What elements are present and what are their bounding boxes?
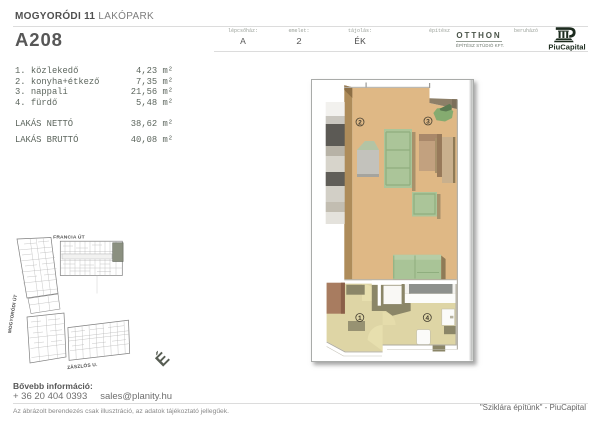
svg-text:3: 3 [426, 118, 430, 125]
svg-text:ZÁSZLÓS U.: ZÁSZLÓS U. [67, 360, 98, 371]
svg-text:FRANCIA ÚT: FRANCIA ÚT [53, 234, 85, 241]
svg-text:PiuCapital: PiuCapital [548, 42, 585, 51]
svg-text:4: 4 [425, 315, 429, 322]
svg-text:2: 2 [358, 119, 362, 126]
svg-text:1: 1 [358, 315, 362, 322]
svg-text:É: É [152, 349, 173, 370]
svg-text:MOGYORÓDI ÚT: MOGYORÓDI ÚT [5, 294, 18, 334]
